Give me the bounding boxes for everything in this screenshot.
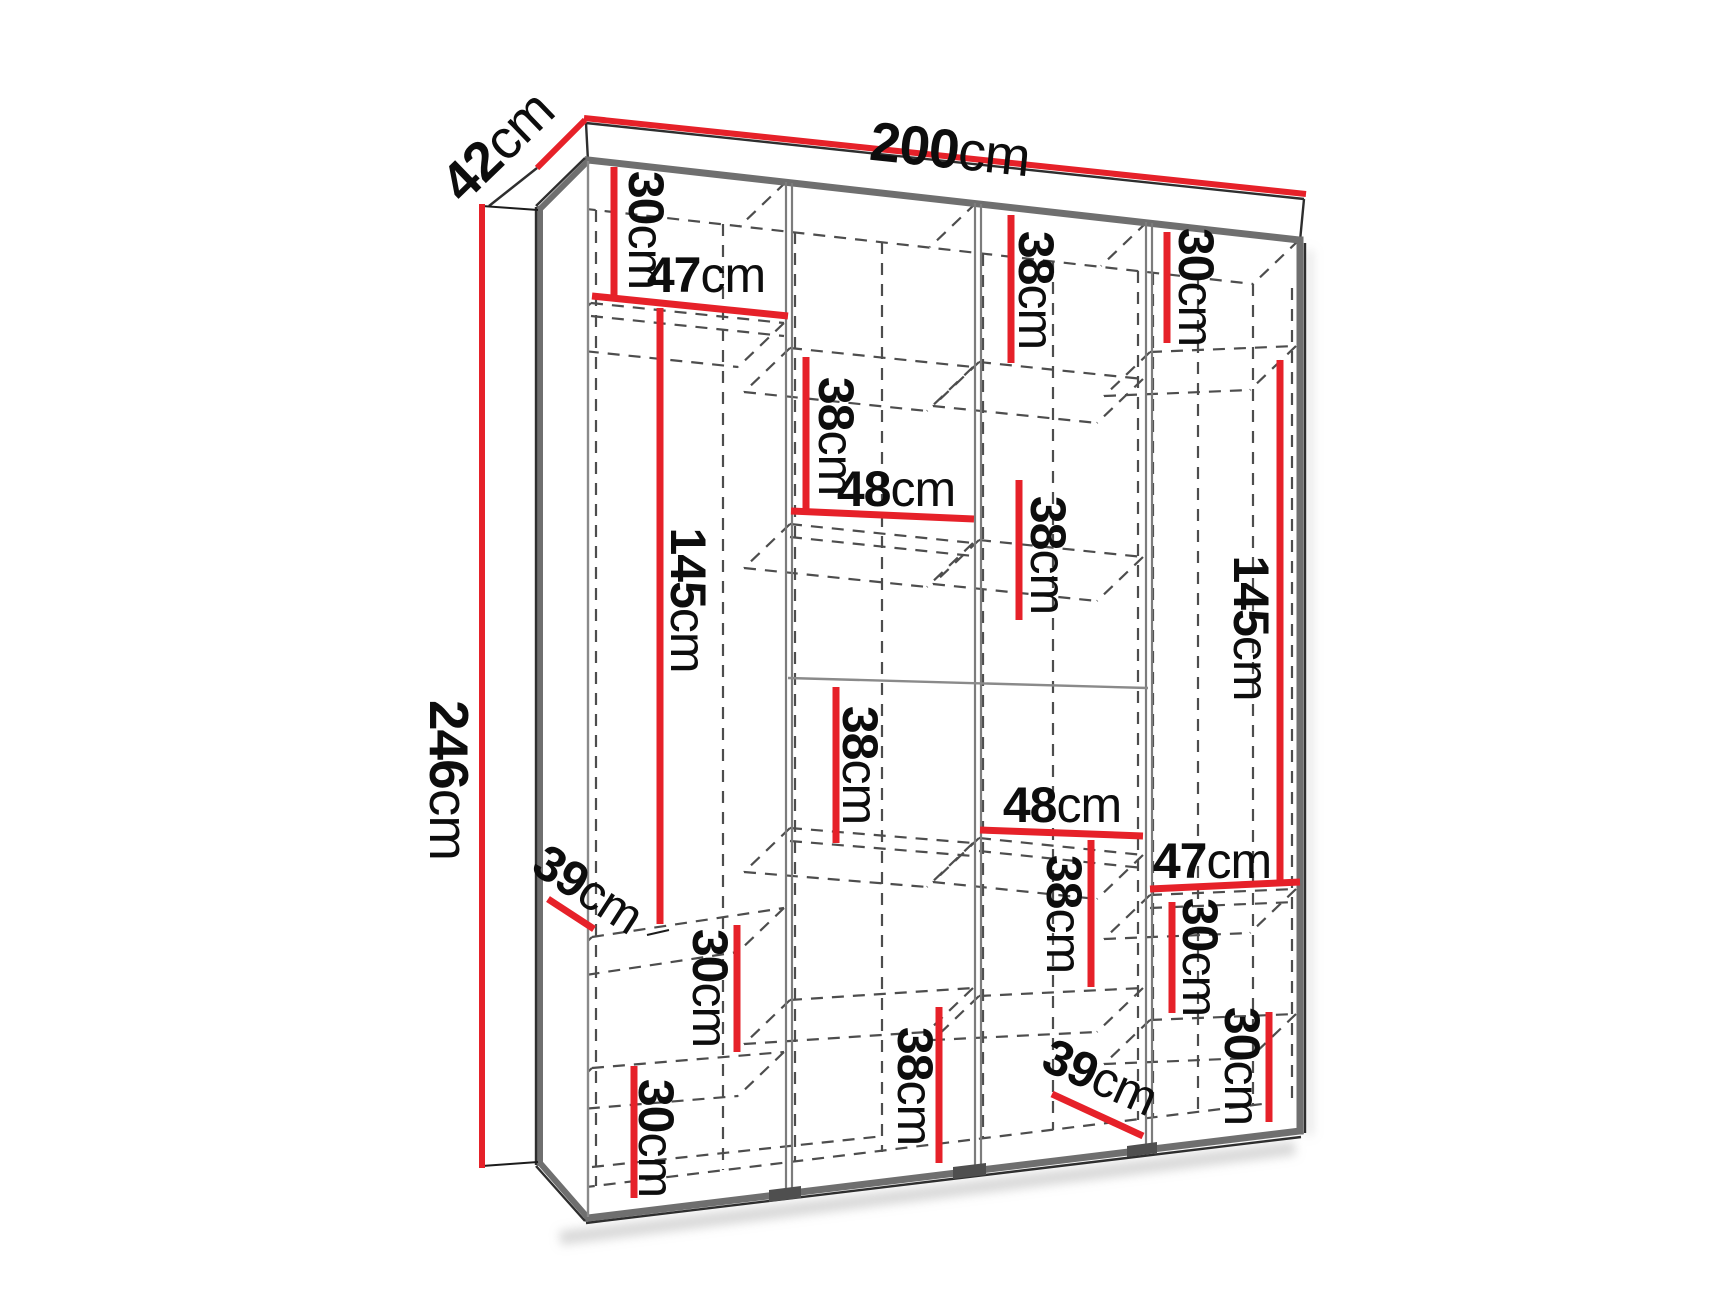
wardrobe-dimension-diagram-page: 200cm 42cm 246cm 30cm 47cm 145cm 39cm 30…	[0, 0, 1726, 1295]
label-s1-low-30a: 30cm	[682, 929, 738, 1047]
bottom-outer-line	[586, 1137, 1301, 1223]
label-s2-shelf-48: 48cm	[837, 461, 955, 517]
label-s3-low-38: 38cm	[1036, 855, 1092, 973]
label-s1-shelf-47: 47cm	[647, 247, 765, 303]
divider-2	[975, 203, 981, 1171]
label-s4-top-30: 30cm	[1168, 228, 1224, 346]
middle-fixed-shelf-edge	[788, 678, 1148, 688]
label-s3-mid-38: 38cm	[1020, 496, 1076, 614]
label-s4-hang-145: 145cm	[1223, 555, 1279, 700]
label-s4-shelf-47: 47cm	[1153, 833, 1271, 889]
label-s2-mid-38: 38cm	[832, 706, 888, 824]
label-s4-mid-30: 30cm	[1172, 898, 1228, 1016]
label-s1-low-30b: 30cm	[628, 1079, 684, 1197]
label-s4-low-30: 30cm	[1214, 1007, 1270, 1125]
label-s1-hang-145: 145cm	[660, 527, 716, 672]
label-overall-depth: 42cm	[429, 78, 566, 213]
label-s3-top-38: 38cm	[1008, 231, 1064, 349]
left-panel-face	[540, 161, 588, 1217]
label-s3-shelf-48: 48cm	[1003, 777, 1121, 833]
wardrobe-dimension-drawing: 200cm 42cm 246cm 30cm 47cm 145cm 39cm 30…	[0, 0, 1726, 1295]
label-overall-height: 246cm	[418, 700, 480, 860]
divider-3	[1146, 222, 1152, 1150]
label-s2-low-38: 38cm	[887, 1027, 943, 1145]
